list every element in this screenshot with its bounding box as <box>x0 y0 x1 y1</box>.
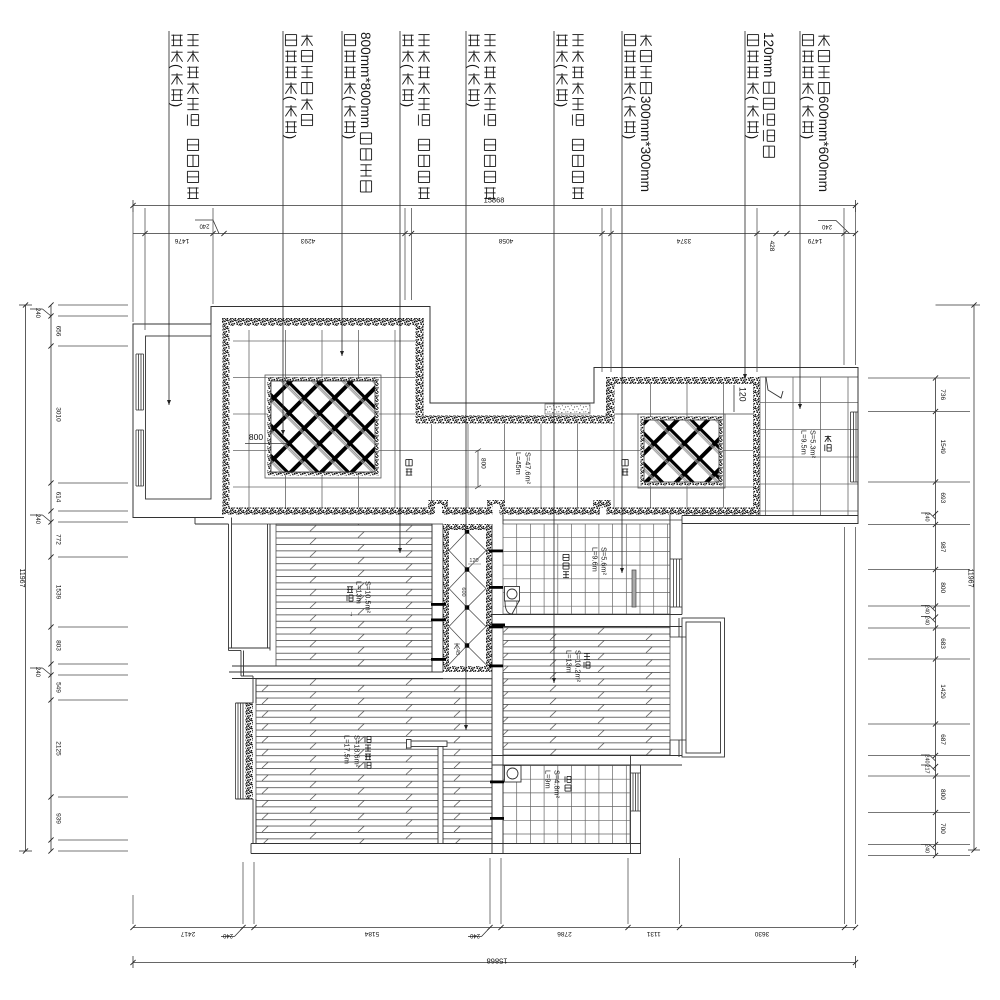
svg-text:): ) <box>554 103 569 108</box>
svg-text:120: 120 <box>737 387 747 402</box>
svg-text:L=13m: L=13m <box>564 650 573 673</box>
svg-text:1429: 1429 <box>939 684 946 699</box>
svg-text:600mm*600mm: 600mm*600mm <box>816 96 831 192</box>
svg-text:S=18.6m²: S=18.6m² <box>352 735 361 768</box>
svg-text:L=17.5m: L=17.5m <box>342 735 351 764</box>
svg-text:240: 240 <box>34 514 40 525</box>
svg-text:S=5.6m²: S=5.6m² <box>599 547 608 576</box>
svg-text:3010: 3010 <box>55 407 62 422</box>
svg-text:240: 240 <box>924 512 930 521</box>
svg-text:240: 240 <box>821 223 832 229</box>
svg-text:614: 614 <box>55 492 62 503</box>
svg-text:L=45m: L=45m <box>514 452 523 475</box>
svg-text:5184: 5184 <box>364 930 379 937</box>
svg-text:15868: 15868 <box>487 957 508 966</box>
svg-text:→: → <box>348 611 355 618</box>
svg-text:L=9.5m: L=9.5m <box>799 430 808 455</box>
svg-text:687: 687 <box>939 734 946 745</box>
svg-text:): ) <box>745 135 760 140</box>
svg-text:683: 683 <box>939 638 946 649</box>
svg-text:45: 45 <box>454 649 460 655</box>
svg-text:(: ( <box>466 64 481 69</box>
svg-text:11967: 11967 <box>967 569 974 588</box>
svg-text:217: 217 <box>924 764 930 773</box>
svg-text:800: 800 <box>480 458 487 469</box>
svg-text:987: 987 <box>939 542 946 553</box>
svg-text:(: ( <box>800 96 815 101</box>
svg-text:L=9m: L=9m <box>543 770 552 789</box>
svg-text:S=4.8m²: S=4.8m² <box>552 770 561 799</box>
svg-text:): ) <box>342 135 357 140</box>
svg-text:600: 600 <box>460 587 466 596</box>
svg-text:2417: 2417 <box>180 930 195 937</box>
svg-text:(: ( <box>400 64 415 69</box>
svg-text:800: 800 <box>939 789 946 800</box>
svg-text:939: 939 <box>55 813 62 824</box>
svg-text:240: 240 <box>924 844 930 853</box>
svg-text:240: 240 <box>924 616 930 625</box>
svg-text:1131: 1131 <box>646 930 660 937</box>
svg-text:428: 428 <box>768 241 775 252</box>
svg-text:120mm: 120mm <box>761 32 776 77</box>
svg-text:S=5.3m²: S=5.3m² <box>808 430 817 459</box>
svg-text:240: 240 <box>469 932 480 938</box>
svg-text:): ) <box>283 135 298 140</box>
svg-text:800mm*800mm: 800mm*800mm <box>358 32 373 128</box>
svg-text:S=47.6m²: S=47.6m² <box>523 452 532 485</box>
svg-text:803: 803 <box>55 640 62 651</box>
svg-text:693: 693 <box>939 492 946 503</box>
svg-text:(: ( <box>554 64 569 69</box>
svg-text:240: 240 <box>34 308 40 319</box>
svg-text:): ) <box>400 103 415 108</box>
svg-text:3630: 3630 <box>754 930 769 937</box>
svg-text:): ) <box>169 103 184 108</box>
svg-text:4058: 4058 <box>498 237 513 244</box>
svg-text:(: ( <box>283 96 298 101</box>
svg-text:240: 240 <box>34 667 40 678</box>
svg-text:(: ( <box>342 96 357 101</box>
svg-text:656: 656 <box>55 326 62 337</box>
svg-text:240: 240 <box>199 223 210 229</box>
svg-text:300mm*300mm: 300mm*300mm <box>638 96 653 192</box>
svg-text:15868: 15868 <box>484 196 505 205</box>
svg-text:1479: 1479 <box>807 237 822 244</box>
svg-text:549: 549 <box>55 682 62 693</box>
svg-text:240: 240 <box>222 932 233 938</box>
svg-text:11967: 11967 <box>18 569 25 588</box>
svg-text:800: 800 <box>249 432 263 442</box>
svg-text:772: 772 <box>55 534 62 545</box>
svg-text:1539: 1539 <box>55 585 62 600</box>
svg-text:(: ( <box>745 96 760 101</box>
svg-text:4293: 4293 <box>300 237 315 244</box>
svg-text:3374: 3374 <box>676 237 691 244</box>
svg-text:L=13m: L=13m <box>354 581 363 604</box>
svg-text:): ) <box>466 103 481 108</box>
svg-text:(: ( <box>169 64 184 69</box>
svg-text:1549: 1549 <box>939 439 946 454</box>
svg-text:2125: 2125 <box>55 741 62 756</box>
svg-text:S=10.5m²: S=10.5m² <box>363 581 372 614</box>
svg-text:120: 120 <box>469 558 478 564</box>
svg-text:L=9.6m: L=9.6m <box>590 547 599 572</box>
svg-text:700: 700 <box>939 823 946 834</box>
svg-text:S=10.2m²: S=10.2m² <box>573 650 582 683</box>
svg-text:): ) <box>622 135 637 140</box>
svg-text:(: ( <box>622 96 637 101</box>
svg-text:1476: 1476 <box>174 237 189 244</box>
svg-text:800: 800 <box>939 582 946 593</box>
svg-text:): ) <box>800 135 815 140</box>
svg-text:736: 736 <box>939 389 946 400</box>
svg-text:2786: 2786 <box>557 930 572 937</box>
